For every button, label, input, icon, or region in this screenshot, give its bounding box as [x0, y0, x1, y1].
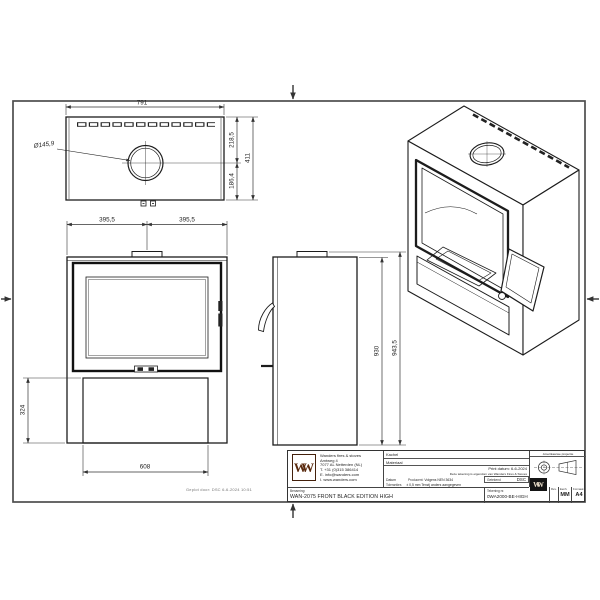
dim-base-height: 324 [20, 405, 27, 416]
ownership-note: Deze tekening is eigendom van Wanders Fi… [384, 472, 527, 476]
title-block: WW Wanders fires & stoves Amtweg 4 7077 … [287, 450, 585, 502]
field-tekening-nr: Tekening nr. 0WA2000-BE-HIGH [485, 487, 529, 503]
units-value: MM [559, 492, 571, 498]
field-rev: Rev. [549, 487, 558, 503]
field-benaming: Benaming: WAN-2075 FRONT BLACK EDITION H… [288, 487, 485, 503]
third-angle-projection-icon [530, 457, 587, 478]
benaming-label: Benaming: [290, 489, 484, 493]
field-producent: Producent: Volgens NEN 3634 [408, 478, 483, 482]
front-view [23, 221, 227, 476]
wanders-logo-monogram: WW [294, 460, 308, 476]
field-format: Formaat A4 [571, 487, 586, 503]
toleranties-value: ± 0,5 mm Tenzij anders aangegeven [406, 483, 461, 487]
toleranties-label: Toleranties [386, 483, 401, 487]
drawing-linework [0, 0, 600, 600]
getekend-value: DSC [517, 477, 526, 482]
getekend-label: Getekend [487, 478, 501, 482]
dim-side-body: 930 [374, 346, 381, 357]
field-datum: Datum [384, 478, 408, 482]
benaming-value: WAN-2075 FRONT BLACK EDITION HIGH [290, 494, 484, 500]
print-date: Print datum: 6-6-2024 [384, 466, 527, 471]
dim-top-total: 411 [245, 153, 252, 163]
tekening-value: 0WA2000-BE-HIGH [487, 494, 529, 499]
dim-top-width: 791 [137, 100, 148, 107]
rev-label: Rev. [550, 487, 558, 491]
field-materiaal: Materiaal [384, 459, 529, 466]
drawing-sheet: 791 Ø145,9 218,5 186,4 411 395,5 395,5 3… [0, 0, 600, 600]
producent-label: Producent: [408, 478, 423, 482]
field-units: Eenh. MM [558, 487, 571, 503]
wanders-chip-monogram: WW [533, 481, 541, 489]
field-kachel: Kachel [384, 451, 529, 459]
dim-top-lower: 186,4 [229, 173, 236, 189]
field-toleranties: Toleranties ± 0,5 mm Tenzij anders aange… [384, 483, 529, 487]
company-info: Wanders fires & stoves Amtweg 4 7077 AL … [320, 454, 382, 482]
wanders-logo-chip: WW [530, 478, 547, 491]
dim-top-upper: 218,5 [229, 132, 236, 148]
top-view [57, 104, 258, 206]
wanders-logo: WW [292, 454, 316, 481]
dim-side-total: 943,5 [392, 340, 399, 356]
tekening-label: Tekening nr. [487, 489, 529, 493]
format-label: Formaat [572, 487, 586, 491]
company-website: I. www.wanders.com [320, 478, 382, 483]
dim-front-half-right: 395,5 [179, 217, 195, 224]
units-label: Eenh. [559, 487, 571, 491]
plot-stamp: Geplot door: DSC 6-6-2024 10:51 [186, 487, 252, 492]
title-block-company-cell: WW Wanders fires & stoves Amtweg 4 7077 … [288, 451, 384, 487]
format-value: A4 [572, 492, 586, 498]
side-view [259, 252, 407, 446]
dim-base-width: 608 [140, 464, 151, 471]
iso-view [408, 106, 579, 355]
producent-value: Volgens NEN 3634 [424, 478, 453, 482]
dim-front-half-left: 395,5 [99, 217, 115, 224]
